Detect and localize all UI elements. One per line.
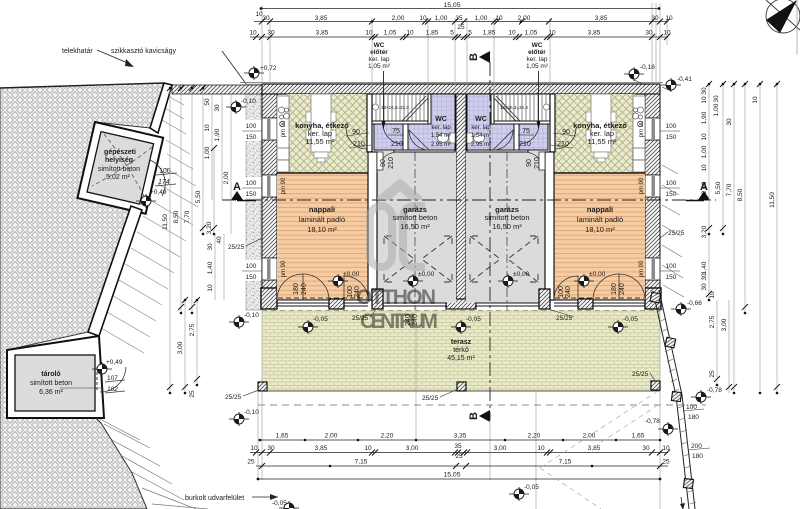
svg-text:-0,18: -0,18	[640, 64, 655, 71]
svg-text:30: 30	[214, 104, 221, 112]
svg-text:3,85: 3,85	[595, 15, 608, 22]
svg-text:100: 100	[246, 180, 257, 187]
svg-text:3,35: 3,35	[454, 433, 467, 440]
svg-text:3,85: 3,85	[588, 30, 601, 37]
svg-text:1,40: 1,40	[701, 261, 708, 274]
svg-text:10: 10	[365, 30, 373, 37]
svg-text:10: 10	[364, 445, 372, 452]
svg-text:18,10 m²: 18,10 m²	[585, 225, 615, 234]
svg-text:8,50: 8,50	[737, 188, 744, 201]
svg-text:telekhatár: telekhatár	[62, 48, 93, 55]
svg-text:35: 35	[454, 443, 462, 450]
svg-text:-0,10: -0,10	[241, 98, 256, 105]
svg-text:B: B	[468, 53, 480, 61]
svg-text:laminált padló: laminált padló	[577, 215, 623, 224]
svg-text:±0,00: ±0,00	[418, 271, 435, 278]
svg-text:-0,10: -0,10	[244, 409, 259, 416]
svg-text:240: 240	[565, 286, 572, 298]
svg-text:1,05 m²: 1,05 m²	[526, 63, 549, 70]
svg-text:10: 10	[508, 30, 516, 37]
svg-text:simított beton: simított beton	[30, 380, 72, 387]
svg-text:3,00: 3,00	[406, 445, 419, 452]
svg-text:75: 75	[392, 128, 400, 135]
svg-text:-0,05: -0,05	[313, 316, 328, 323]
svg-text:1,54 m²: 1,54 m²	[471, 133, 491, 139]
svg-text:2,00: 2,00	[392, 15, 405, 22]
svg-text:simított beton: simított beton	[392, 213, 437, 222]
svg-text:1,05 m²: 1,05 m²	[368, 63, 391, 70]
svg-text:10: 10	[207, 284, 214, 292]
svg-text:100: 100	[246, 263, 257, 270]
svg-text:10: 10	[701, 164, 708, 172]
svg-text:10: 10	[204, 124, 211, 132]
svg-text:+0,72: +0,72	[260, 65, 277, 72]
svg-text:7,70: 7,70	[726, 183, 733, 196]
svg-text:240: 240	[412, 314, 419, 326]
svg-text:30: 30	[645, 30, 653, 37]
svg-text:180: 180	[688, 414, 699, 421]
svg-text:7,70: 7,70	[184, 210, 191, 223]
svg-text:terasz: terasz	[451, 339, 472, 346]
svg-text:30: 30	[701, 87, 708, 95]
svg-text:1,00: 1,00	[204, 146, 211, 159]
svg-text:50: 50	[204, 98, 211, 106]
svg-text:2,00: 2,00	[518, 15, 531, 22]
svg-text:szikkasztó kavicságy: szikkasztó kavicságy	[111, 48, 176, 55]
svg-text:2,95 m²: 2,95 m²	[431, 142, 451, 148]
svg-text:1,85: 1,85	[426, 30, 439, 37]
svg-text:3,20: 3,20	[701, 225, 708, 238]
svg-text:gépészeti: gépészeti	[104, 149, 136, 156]
svg-text:1,85: 1,85	[483, 30, 496, 37]
svg-text:180: 180	[692, 453, 703, 460]
svg-text:2,00: 2,00	[223, 171, 230, 184]
svg-text:1,40: 1,40	[207, 261, 214, 274]
svg-text:13×16,3=32,3: 13×16,3=32,3	[381, 105, 409, 110]
svg-text:210: 210	[388, 157, 395, 169]
svg-text:5,50: 5,50	[195, 190, 202, 203]
svg-text:10: 10	[701, 96, 708, 104]
svg-text:WC: WC	[532, 42, 543, 49]
svg-text:pm 90: pm 90	[281, 260, 287, 277]
svg-text:2,20: 2,20	[381, 433, 394, 440]
svg-text:-0,05: -0,05	[466, 316, 481, 323]
svg-text:+0,49: +0,49	[106, 359, 123, 366]
svg-text:nappali: nappali	[587, 205, 613, 214]
svg-text:15,05: 15,05	[443, 2, 460, 9]
svg-text:10: 10	[663, 30, 671, 37]
svg-text:-0,78: -0,78	[707, 387, 722, 394]
svg-text:30: 30	[642, 445, 650, 452]
svg-text:±0,00: ±0,00	[513, 271, 530, 278]
svg-text:25/25: 25/25	[225, 394, 242, 401]
svg-text:3,00: 3,00	[177, 341, 184, 354]
svg-text:25/25: 25/25	[632, 371, 649, 378]
svg-text:pm 90: pm 90	[639, 120, 645, 137]
svg-text:150: 150	[246, 274, 257, 281]
svg-text:150: 150	[666, 134, 677, 141]
svg-text:-0,78: -0,78	[645, 418, 660, 425]
svg-text:180: 180	[611, 283, 618, 295]
svg-text:100: 100	[666, 263, 677, 270]
svg-text:240: 240	[405, 314, 412, 326]
svg-text:laminált padló: laminált padló	[299, 215, 345, 224]
svg-text:ker. lap: ker. lap	[527, 56, 548, 63]
svg-text:150: 150	[666, 191, 677, 198]
svg-text:45,15 m²: 45,15 m²	[447, 355, 475, 362]
svg-text:1,00: 1,00	[435, 15, 448, 22]
svg-text:10: 10	[665, 15, 673, 22]
svg-text:10: 10	[701, 133, 708, 141]
svg-text:pm 90: pm 90	[281, 177, 287, 194]
svg-text:25: 25	[709, 370, 716, 378]
svg-text:10: 10	[537, 445, 545, 452]
svg-text:30: 30	[701, 273, 708, 281]
svg-text:simított beton: simított beton	[484, 213, 529, 222]
svg-text:7,15: 7,15	[355, 459, 368, 466]
svg-text:25/25: 25/25	[352, 315, 369, 322]
svg-text:10: 10	[752, 96, 759, 104]
svg-text:2,75: 2,75	[189, 323, 196, 336]
svg-text:-0,41: -0,41	[677, 76, 692, 83]
svg-text:30: 30	[701, 283, 708, 291]
svg-text:25: 25	[189, 390, 196, 398]
svg-text:1,00: 1,00	[701, 145, 708, 158]
svg-text:pm 90: pm 90	[281, 120, 287, 137]
svg-text:-0,10: -0,10	[244, 312, 259, 319]
svg-text:simított beton: simított beton	[98, 166, 140, 173]
svg-text:150: 150	[246, 191, 257, 198]
svg-text:-0,05: -0,05	[524, 484, 539, 491]
svg-text:előtér: előtér	[370, 49, 388, 56]
svg-text:15,05: 15,05	[443, 472, 460, 479]
svg-text:100: 100	[666, 180, 677, 187]
svg-text:11,55 m²: 11,55 m²	[305, 137, 335, 146]
svg-text:1,54 m²: 1,54 m²	[431, 133, 451, 139]
svg-text:WC: WC	[374, 42, 385, 49]
svg-text:210: 210	[534, 157, 541, 169]
svg-text:16,50 m²: 16,50 m²	[492, 222, 522, 231]
svg-text:8,50: 8,50	[173, 210, 180, 223]
svg-text:210: 210	[519, 141, 531, 148]
svg-text:35: 35	[455, 15, 463, 22]
svg-text:WC: WC	[435, 116, 447, 123]
svg-text:±0,00: ±0,00	[589, 271, 606, 278]
svg-text:CENTRUM: CENTRUM	[360, 310, 438, 333]
svg-text:150: 150	[246, 134, 257, 141]
svg-text:30: 30	[713, 95, 720, 103]
svg-text:30: 30	[207, 243, 214, 251]
svg-text:2,20: 2,20	[528, 433, 541, 440]
svg-text:100: 100	[666, 123, 677, 130]
svg-text:100: 100	[246, 123, 257, 130]
svg-text:10: 10	[709, 291, 716, 299]
svg-text:11,55 m²: 11,55 m²	[587, 137, 617, 146]
svg-text:1,65: 1,65	[276, 433, 289, 440]
svg-text:pm 90: pm 90	[639, 177, 645, 194]
svg-text:tároló: tároló	[41, 371, 60, 378]
svg-text:2,75: 2,75	[709, 315, 716, 328]
svg-text:180: 180	[293, 283, 300, 295]
svg-text:11,50: 11,50	[162, 214, 169, 230]
svg-text:25: 25	[247, 459, 255, 466]
svg-text:3,00: 3,00	[494, 445, 507, 452]
svg-text:75: 75	[522, 128, 530, 135]
svg-text:240: 240	[619, 283, 626, 295]
svg-text:pm 90: pm 90	[639, 260, 645, 277]
svg-text:B: B	[468, 412, 480, 420]
svg-text:2,00: 2,00	[325, 433, 338, 440]
svg-text:1,90: 1,90	[214, 128, 221, 141]
svg-text:2,95 m²: 2,95 m²	[471, 142, 491, 148]
svg-text:25: 25	[662, 459, 670, 466]
svg-text:térkő: térkő	[453, 347, 469, 354]
svg-text:OTTHON: OTTHON	[356, 286, 436, 309]
svg-text:1,00: 1,00	[475, 15, 488, 22]
svg-text:100: 100	[558, 286, 565, 298]
svg-text:210: 210	[391, 141, 403, 148]
svg-text:16,50 m²: 16,50 m²	[400, 222, 430, 231]
svg-text:7,15: 7,15	[559, 459, 572, 466]
svg-text:WC: WC	[475, 116, 487, 123]
svg-text:25: 25	[457, 24, 465, 31]
svg-text:nappali: nappali	[309, 205, 335, 214]
svg-text:100: 100	[347, 286, 354, 298]
svg-text:burkolt udvarfelület: burkolt udvarfelület	[185, 495, 244, 502]
svg-text:helyiség: helyiség	[105, 157, 133, 164]
svg-text:240: 240	[354, 286, 361, 298]
svg-text:40: 40	[216, 236, 223, 244]
svg-text:11,50: 11,50	[769, 192, 776, 208]
svg-text:6,36 m²: 6,36 m²	[39, 389, 63, 396]
svg-text:2,00: 2,00	[701, 181, 708, 194]
svg-text:3,85: 3,85	[316, 30, 329, 37]
svg-text:1,05: 1,05	[384, 30, 397, 37]
svg-text:-0,05: -0,05	[272, 500, 287, 507]
svg-text:3,20: 3,20	[206, 221, 213, 234]
svg-text:3,00: 3,00	[721, 318, 728, 331]
svg-text:3,85: 3,85	[315, 445, 328, 452]
svg-text:1,00: 1,00	[713, 103, 720, 116]
svg-text:1,65: 1,65	[632, 433, 645, 440]
svg-text:±0,00: ±0,00	[343, 271, 360, 278]
svg-text:3,85: 3,85	[588, 445, 601, 452]
svg-text:90: 90	[380, 159, 387, 167]
svg-text:-0,66: -0,66	[687, 300, 702, 307]
svg-text:5: 5	[450, 30, 454, 37]
svg-text:1,05: 1,05	[525, 30, 538, 37]
svg-text:+0,49: +0,49	[150, 189, 167, 196]
svg-text:-0,05: -0,05	[623, 316, 638, 323]
svg-text:ker. lap: ker. lap	[431, 125, 451, 131]
svg-text:240: 240	[301, 283, 308, 295]
svg-text:3,85: 3,85	[315, 15, 328, 22]
svg-text:1,90: 1,90	[701, 111, 708, 124]
svg-text:5,02 m²: 5,02 m²	[106, 174, 130, 181]
svg-text:előtér: előtér	[528, 49, 546, 56]
svg-text:13×16,3=32,3: 13×16,3=32,3	[500, 105, 528, 110]
svg-text:30: 30	[726, 118, 733, 126]
svg-text:25/25: 25/25	[422, 395, 439, 402]
svg-text:5,50: 5,50	[715, 181, 722, 194]
svg-text:ker. lap: ker. lap	[471, 125, 491, 131]
svg-text:30: 30	[262, 15, 270, 22]
svg-text:18,10 m²: 18,10 m²	[307, 225, 337, 234]
svg-text:90: 90	[526, 159, 533, 167]
svg-text:10: 10	[249, 30, 257, 37]
svg-text:150: 150	[666, 274, 677, 281]
svg-text:25/25: 25/25	[228, 244, 245, 251]
